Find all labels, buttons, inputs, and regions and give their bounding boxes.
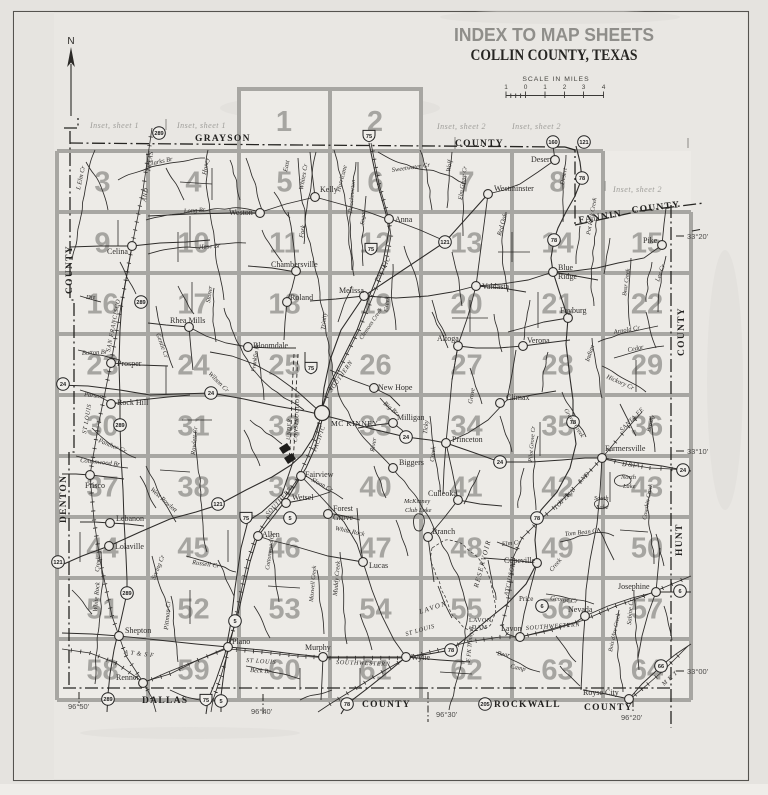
svg-text:25: 25 [268,350,300,382]
svg-text:6: 6 [540,604,543,610]
svg-text:Inset, sheet 2: Inset, sheet 2 [612,185,662,194]
svg-text:289: 289 [103,697,112,703]
svg-text:UNDER: UNDER [286,418,293,440]
svg-text:59: 59 [177,655,209,687]
svg-text:78: 78 [448,648,454,654]
svg-text:DENTON: DENTON [59,475,69,523]
svg-text:DAM: DAM [472,625,488,631]
svg-text:Wylie: Wylie [411,653,431,662]
svg-text:Chambersville: Chambersville [271,260,318,269]
svg-text:96°50': 96°50' [68,702,90,711]
svg-text:75: 75 [308,366,314,372]
svg-text:Die: Die [85,294,96,301]
svg-text:Creek: Creek [94,556,102,572]
svg-text:40: 40 [359,472,391,504]
svg-text:South: South [594,495,609,502]
svg-text:Inset, sheet 2: Inset, sheet 2 [436,122,486,131]
svg-text:Farmersville: Farmersville [605,444,646,453]
svg-text:Lavon: Lavon [501,624,521,633]
svg-text:Lolaville: Lolaville [115,542,144,551]
svg-text:Frisco: Frisco [85,481,105,490]
svg-text:Inset, sheet 2: Inset, sheet 2 [511,122,561,131]
svg-text:N: N [67,36,74,47]
svg-text:Roland: Roland [290,293,313,302]
svg-text:Inset, sheet 1: Inset, sheet 1 [89,121,139,130]
svg-text:289: 289 [136,300,145,306]
svg-text:24: 24 [497,460,504,466]
svg-text:Rock Hill: Rock Hill [117,398,149,407]
svg-text:LAVON: LAVON [469,618,492,624]
svg-text:75: 75 [366,134,372,140]
svg-text:New Hope: New Hope [378,383,413,392]
svg-text:6: 6 [678,589,681,595]
svg-text:96°30': 96°30' [436,710,458,719]
svg-text:Rhea Mills: Rhea Mills [170,316,205,325]
svg-text:COUNTY: COUNTY [65,245,75,294]
svg-text:Creek: Creek [383,296,391,312]
svg-text:3: 3 [94,167,110,199]
svg-text:26: 26 [359,350,391,382]
svg-text:Fayburg: Fayburg [560,306,587,315]
svg-text:Josephine: Josephine [618,582,650,591]
svg-text:205: 205 [480,702,489,708]
svg-text:Grove: Grove [333,513,353,522]
svg-text:0: 0 [524,84,528,91]
svg-text:4: 4 [602,84,606,91]
svg-text:52: 52 [177,594,209,626]
svg-text:COUNTY: COUNTY [455,139,504,149]
svg-text:Culleoka: Culleoka [428,489,457,498]
svg-text:96°20': 96°20' [621,713,643,722]
svg-text:121: 121 [213,502,222,508]
svg-text:Lake: Lake [595,504,609,511]
svg-text:Blue: Blue [558,263,574,272]
svg-text:Desert: Desert [531,155,553,164]
svg-text:121: 121 [579,140,588,146]
svg-text:66: 66 [658,664,664,670]
svg-text:121: 121 [440,240,449,246]
svg-text:Inset, sheet 1: Inset, sheet 1 [176,121,226,130]
svg-text:24: 24 [403,435,410,441]
svg-text:160: 160 [548,140,557,146]
svg-text:Lake: Lake [622,483,636,490]
svg-text:33°10': 33°10' [687,447,709,456]
svg-text:289: 289 [115,423,124,429]
svg-text:Nevada: Nevada [568,605,593,614]
svg-text:121: 121 [53,560,62,566]
svg-text:33°00': 33°00' [687,667,709,676]
svg-text:L & A: L & A [621,461,640,469]
svg-text:DALLAS: DALLAS [142,696,188,706]
svg-text:Weston: Weston [229,208,253,217]
svg-text:Lebanon: Lebanon [116,514,144,523]
svg-text:Button Br: Button Br [82,349,108,357]
svg-text:Ridge: Ridge [558,272,578,281]
svg-text:Fairview: Fairview [305,470,334,479]
svg-text:Ticky: Ticky [422,420,430,434]
svg-text:1: 1 [504,84,508,91]
svg-text:Altoga: Altoga [437,334,459,343]
svg-text:1: 1 [276,106,292,138]
svg-text:Melissa: Melissa [339,286,364,295]
svg-text:Murphy: Murphy [305,643,331,652]
svg-text:COUNTY: COUNTY [677,307,687,356]
svg-text:78: 78 [551,238,557,244]
svg-text:78: 78 [534,516,540,522]
svg-text:Copeville: Copeville [504,556,536,565]
svg-text:58: 58 [86,655,118,687]
svg-text:1: 1 [543,84,547,91]
svg-text:Shepton: Shepton [125,626,151,635]
svg-text:Pike: Pike [643,236,658,245]
svg-text:Branch: Branch [432,527,455,536]
svg-text:27: 27 [450,350,482,382]
svg-text:78: 78 [344,702,350,708]
svg-text:38: 38 [177,472,209,504]
svg-text:Princeton: Princeton [452,435,483,444]
svg-text:48: 48 [450,533,482,565]
svg-text:33°20': 33°20' [687,232,709,241]
svg-text:Biggers: Biggers [399,458,424,467]
svg-text:Lucas: Lucas [369,561,388,570]
svg-text:2: 2 [563,84,567,91]
svg-text:Celina: Celina [107,247,128,256]
svg-text:6: 6 [367,167,383,199]
svg-text:75: 75 [203,698,209,704]
svg-text:63: 63 [541,655,573,687]
svg-text:INDEX TO MAP SHEETS: INDEX TO MAP SHEETS [454,24,654,45]
svg-text:ROCKWALL: ROCKWALL [494,700,561,710]
svg-text:53: 53 [268,594,300,626]
svg-text:Forest: Forest [333,504,354,513]
svg-text:HUNT: HUNT [675,523,685,556]
svg-text:78: 78 [579,176,585,182]
svg-text:Price: Price [519,595,533,603]
svg-text:Royse City: Royse City [583,688,619,697]
svg-text:Westminster: Westminster [494,184,534,193]
svg-text:96°40': 96°40' [251,707,273,716]
svg-text:24: 24 [680,468,687,474]
svg-text:5: 5 [288,516,291,522]
svg-text:24: 24 [208,391,215,397]
svg-text:Wetsel: Wetsel [292,493,314,502]
svg-text:13: 13 [450,228,482,260]
svg-text:Climax: Climax [506,393,530,402]
svg-text:Prosper: Prosper [117,359,142,368]
svg-text:MC KINNEY: MC KINNEY [331,419,378,428]
svg-text:North: North [620,474,636,481]
svg-text:289: 289 [154,131,163,137]
svg-text:75: 75 [243,516,249,522]
svg-text:24: 24 [177,350,209,382]
svg-text:50: 50 [631,533,663,565]
svg-text:Beck Br: Beck Br [250,667,272,675]
svg-text:Renner: Renner [116,673,139,682]
svg-text:Valdasta: Valdasta [482,282,510,291]
svg-text:Verona: Verona [527,336,550,345]
svg-text:Club Lake: Club Lake [405,507,432,514]
svg-text:3: 3 [582,84,586,91]
svg-text:Milligan: Milligan [397,413,425,422]
svg-text:McKinney: McKinney [403,498,430,505]
svg-text:24: 24 [60,382,67,388]
svg-text:11: 11 [269,228,300,260]
svg-text:Plano: Plano [232,637,250,646]
svg-text:75: 75 [368,247,374,253]
svg-text:20: 20 [450,289,482,321]
svg-text:COUNTY: COUNTY [362,700,411,710]
svg-text:Creek: Creek [429,446,437,462]
svg-text:COUNTY: COUNTY [584,703,633,713]
svg-text:SCALE IN MILES: SCALE IN MILES [522,76,589,83]
svg-text:COLLIN COUNTY, TEXAS: COLLIN COUNTY, TEXAS [471,47,638,64]
svg-text:GRAYSON: GRAYSON [195,134,251,144]
svg-text:5: 5 [233,619,236,625]
svg-text:Anna: Anna [395,215,413,224]
svg-text:5: 5 [219,699,222,705]
svg-text:289: 289 [122,591,131,597]
